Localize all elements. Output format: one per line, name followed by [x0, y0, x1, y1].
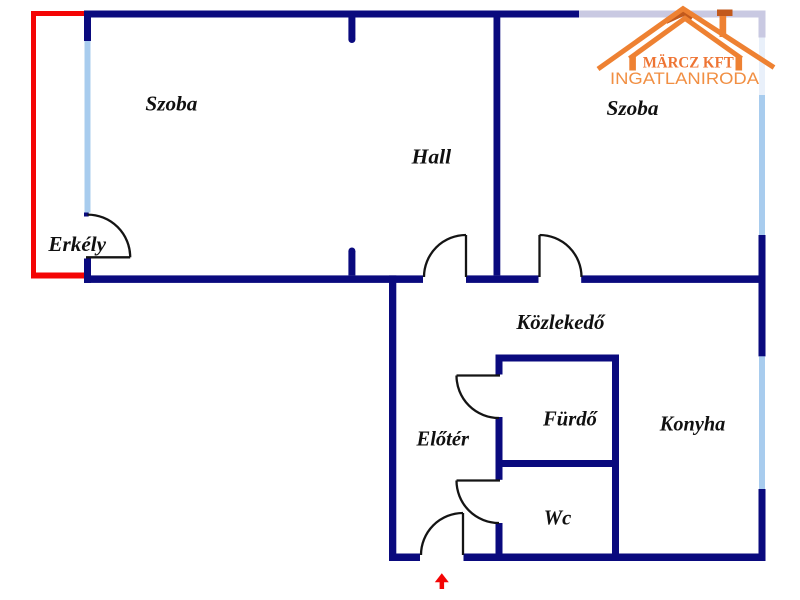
svg-text:Fürdő: Fürdő — [542, 406, 598, 430]
svg-text:Hall: Hall — [411, 145, 452, 169]
svg-text:Szoba: Szoba — [145, 91, 197, 115]
svg-text:Közlekedő: Közlekedő — [515, 310, 605, 334]
svg-text:Erkély: Erkély — [47, 232, 106, 256]
svg-text:Előtér: Előtér — [416, 427, 470, 451]
svg-text:Konyha: Konyha — [659, 411, 725, 435]
svg-text:Wc: Wc — [544, 506, 572, 530]
svg-text:Szoba: Szoba — [607, 96, 659, 120]
svg-text:INGATLANIRODA: INGATLANIRODA — [610, 69, 760, 88]
